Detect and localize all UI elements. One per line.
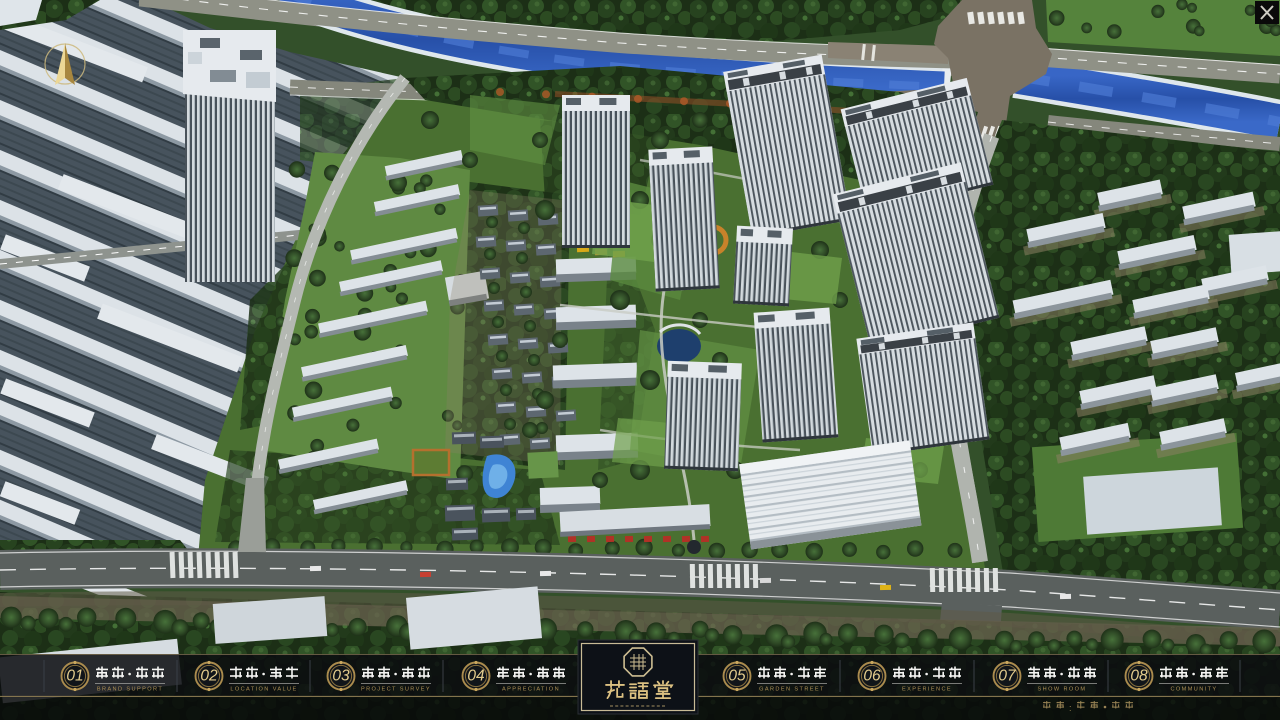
- svg-text:PROJECT SURVEY: PROJECT SURVEY: [361, 687, 431, 693]
- svg-text:04: 04: [467, 668, 485, 685]
- svg-text:SHOW ROOM: SHOW ROOM: [1038, 687, 1087, 693]
- svg-text:EXPERIENCE: EXPERIENCE: [902, 687, 952, 693]
- svg-text:GARDEN STREET: GARDEN STREET: [759, 687, 825, 693]
- svg-text:05: 05: [728, 668, 746, 685]
- svg-text:06: 06: [863, 668, 881, 685]
- svg-text:BRAND SUPPORT: BRAND SUPPORT: [97, 687, 163, 693]
- svg-text:08: 08: [1130, 668, 1148, 685]
- svg-text:07: 07: [998, 668, 1017, 685]
- svg-text:03: 03: [332, 668, 350, 685]
- svg-text::: :: [1069, 703, 1072, 713]
- svg-text:COMMUNITY: COMMUNITY: [1170, 687, 1217, 693]
- svg-text:02: 02: [200, 668, 218, 685]
- svg-text:LOCATION VALUE: LOCATION VALUE: [230, 687, 297, 693]
- svg-text:APPRECIATION: APPRECIATION: [502, 687, 560, 693]
- svg-text:01: 01: [66, 668, 83, 685]
